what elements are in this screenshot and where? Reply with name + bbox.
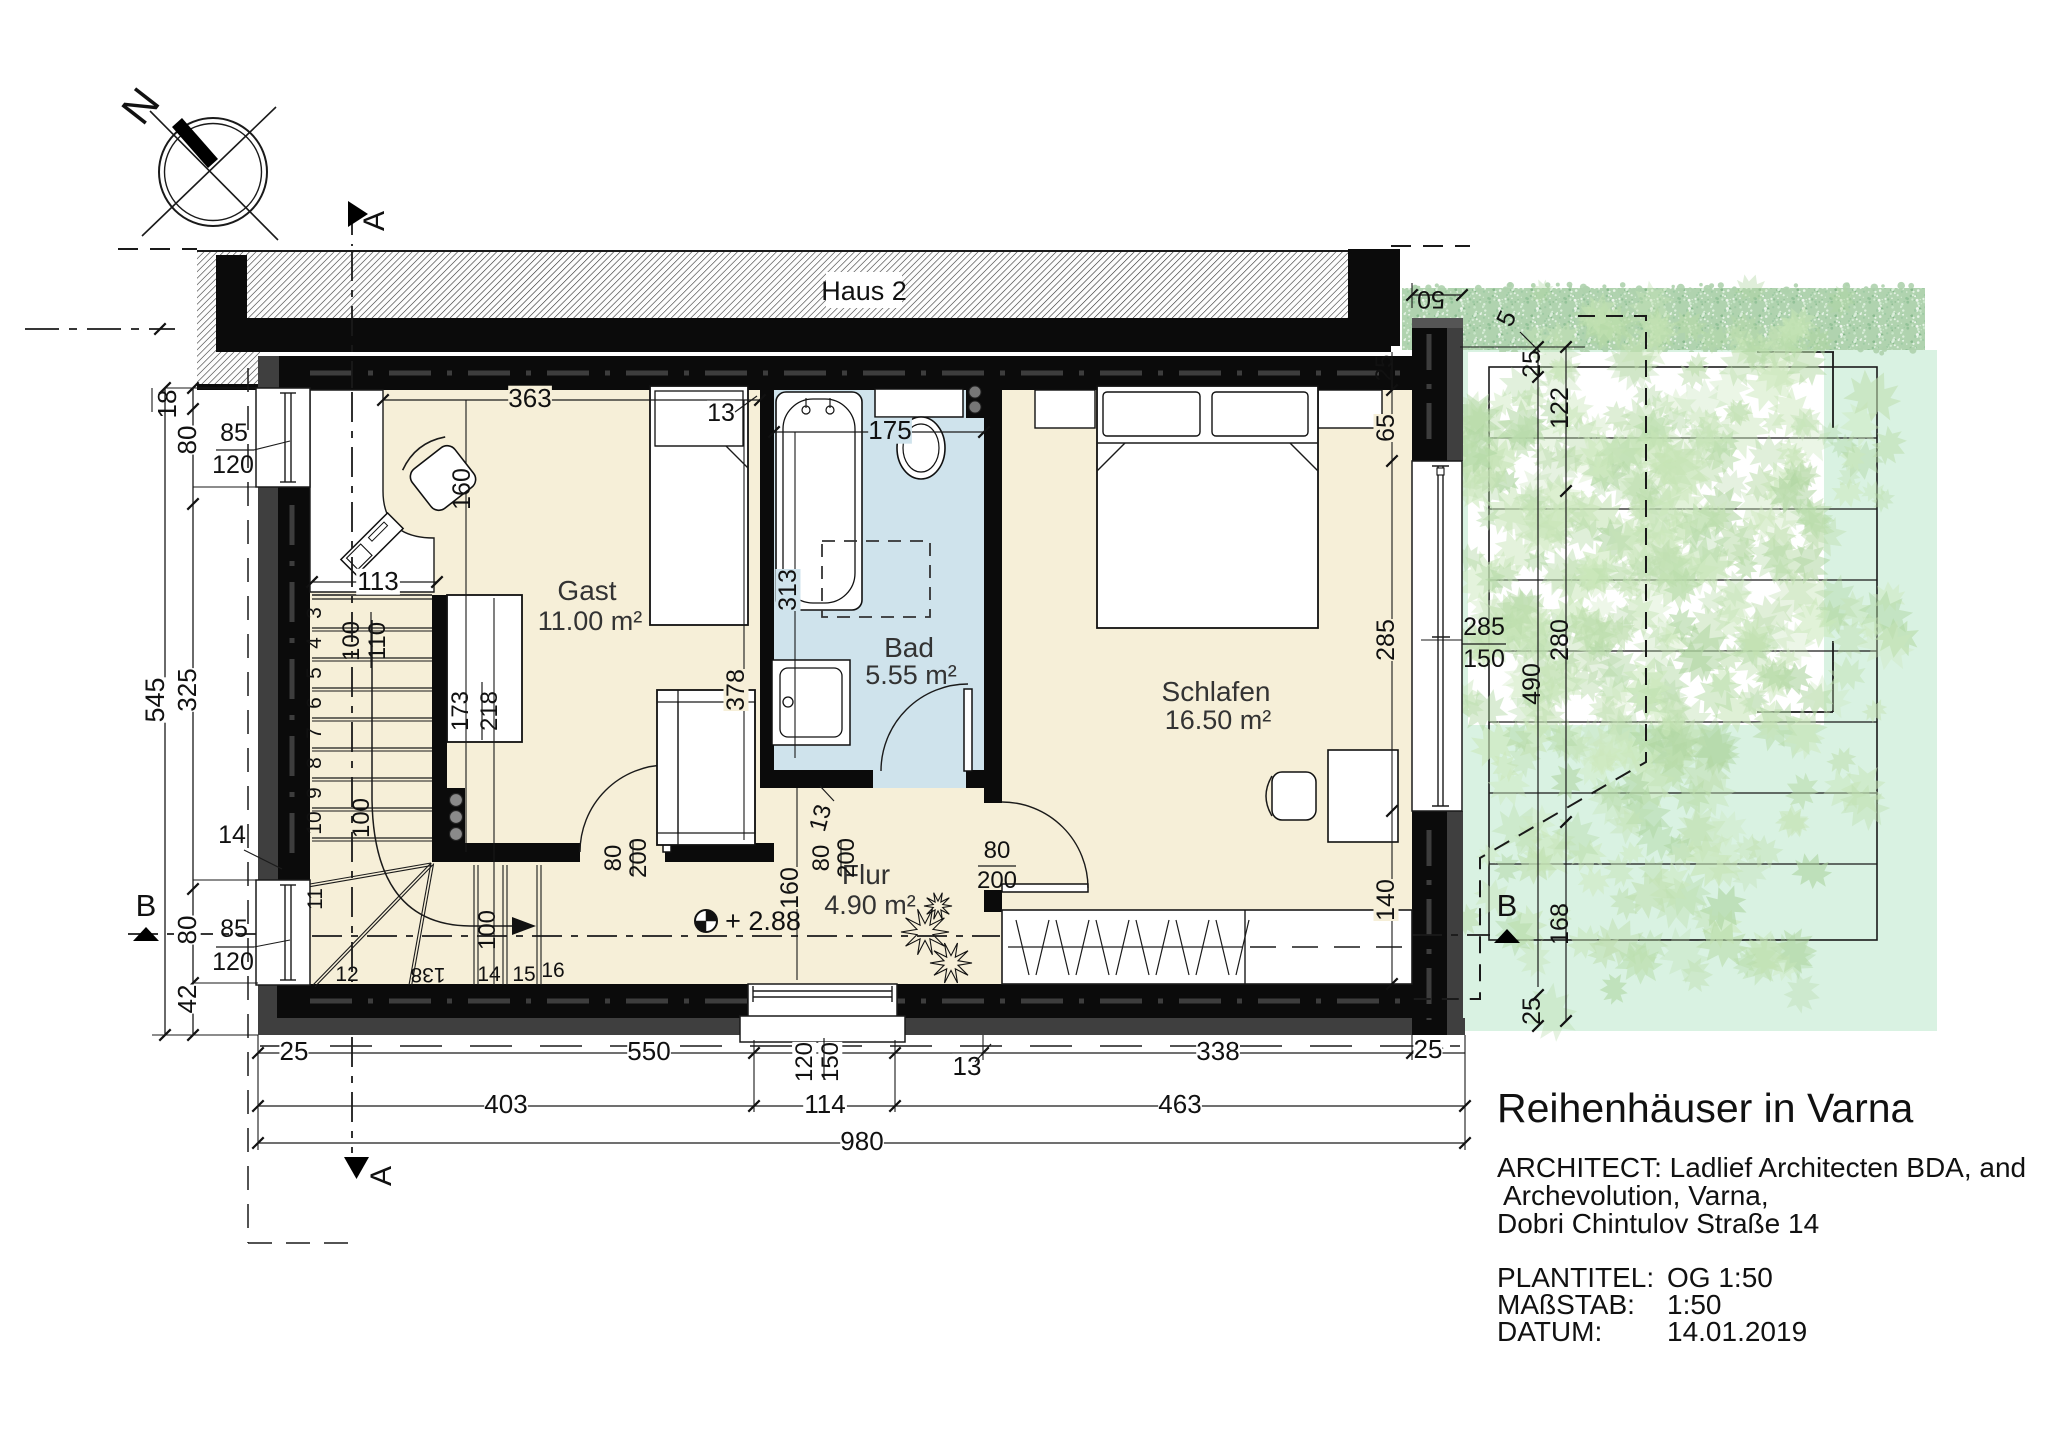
- svg-text:+ 2.88: + 2.88: [725, 906, 801, 936]
- svg-text:80: 80: [600, 845, 627, 872]
- svg-text:16: 16: [541, 959, 564, 982]
- svg-text:25: 25: [1518, 350, 1546, 378]
- svg-text:200: 200: [833, 838, 860, 878]
- svg-text:10: 10: [303, 811, 326, 834]
- svg-text:5: 5: [303, 667, 326, 679]
- svg-text:110: 110: [364, 622, 391, 660]
- svg-text:Reihenhäuser in Varna: Reihenhäuser in Varna: [1497, 1085, 1914, 1131]
- svg-text:25: 25: [1371, 355, 1398, 382]
- svg-text:150: 150: [1463, 645, 1505, 673]
- svg-text:175: 175: [868, 415, 911, 445]
- svg-text:138: 138: [410, 963, 445, 986]
- svg-text:545: 545: [140, 677, 170, 722]
- svg-text:13: 13: [953, 1051, 982, 1081]
- svg-text:42: 42: [172, 985, 202, 1014]
- svg-text:80: 80: [172, 916, 202, 945]
- svg-text:285: 285: [1463, 613, 1505, 641]
- svg-text:403: 403: [484, 1089, 527, 1119]
- svg-text:B: B: [1497, 888, 1518, 923]
- svg-text:80: 80: [984, 837, 1011, 864]
- svg-text:8: 8: [303, 757, 326, 769]
- svg-text:9: 9: [303, 787, 326, 799]
- svg-text:3: 3: [303, 607, 326, 619]
- svg-text:25: 25: [1518, 997, 1546, 1025]
- svg-text:200: 200: [625, 838, 652, 878]
- svg-text:150: 150: [817, 1042, 844, 1082]
- svg-text:B: B: [136, 888, 157, 923]
- svg-text:5.55 m²: 5.55 m²: [865, 660, 957, 690]
- svg-text:65: 65: [1372, 414, 1400, 442]
- svg-text:12: 12: [335, 963, 358, 986]
- svg-text:A: A: [365, 1166, 398, 1186]
- svg-text:Haus 2: Haus 2: [821, 276, 907, 306]
- svg-text:A: A: [358, 211, 391, 231]
- svg-text:285: 285: [1372, 619, 1400, 661]
- svg-text:16.50 m²: 16.50 m²: [1165, 705, 1272, 735]
- svg-text:120: 120: [791, 1042, 818, 1082]
- svg-text:218: 218: [476, 691, 503, 731]
- svg-text:DATUM:: DATUM:: [1497, 1316, 1602, 1347]
- svg-text:313: 313: [774, 569, 802, 611]
- svg-text:80: 80: [172, 426, 202, 455]
- svg-text:378: 378: [722, 669, 750, 711]
- svg-text:325: 325: [172, 668, 202, 711]
- svg-text:Bad: Bad: [884, 632, 934, 663]
- svg-text:7: 7: [303, 727, 326, 739]
- svg-text:14: 14: [477, 963, 501, 986]
- svg-text:490: 490: [1518, 663, 1546, 705]
- svg-text:280: 280: [1546, 619, 1574, 661]
- svg-text:85: 85: [220, 915, 248, 943]
- svg-text:80: 80: [808, 845, 835, 872]
- svg-text:140: 140: [1372, 879, 1400, 921]
- svg-text:4: 4: [303, 637, 326, 649]
- svg-text:18: 18: [152, 390, 182, 419]
- svg-text:160: 160: [448, 468, 476, 510]
- svg-text:14.01.2019: 14.01.2019: [1667, 1316, 1807, 1347]
- svg-text:980: 980: [840, 1126, 883, 1156]
- svg-text:122: 122: [1546, 387, 1574, 429]
- svg-text:25: 25: [1414, 1034, 1443, 1064]
- svg-text:550: 550: [627, 1036, 670, 1066]
- svg-text:11: 11: [304, 888, 327, 910]
- svg-text:114: 114: [804, 1089, 845, 1119]
- svg-text:11.00 m²: 11.00 m²: [538, 606, 643, 636]
- svg-text:120: 120: [212, 948, 254, 976]
- svg-text:Gast: Gast: [557, 575, 616, 606]
- svg-text:200: 200: [977, 867, 1017, 894]
- svg-text:463: 463: [1158, 1089, 1201, 1119]
- svg-text:Schlafen: Schlafen: [1162, 676, 1271, 707]
- svg-text:100: 100: [474, 910, 501, 950]
- svg-text:113: 113: [357, 566, 398, 596]
- svg-text:15: 15: [512, 963, 535, 986]
- svg-text:168: 168: [1546, 903, 1574, 945]
- svg-text:120: 120: [212, 451, 254, 479]
- svg-text:25: 25: [280, 1036, 309, 1066]
- svg-text:Archevolution, Varna,: Archevolution, Varna,: [1503, 1180, 1769, 1211]
- svg-text:85: 85: [220, 419, 248, 447]
- svg-text:50: 50: [1417, 285, 1445, 313]
- svg-text:Dobri Chintulov Straße 14: Dobri Chintulov Straße 14: [1497, 1208, 1819, 1239]
- svg-text:14: 14: [218, 821, 246, 849]
- svg-text:ARCHITECT: Ladlief Architecten: ARCHITECT: Ladlief Architecten BDA, and: [1497, 1152, 2026, 1183]
- svg-text:173: 173: [447, 691, 474, 731]
- svg-text:6: 6: [303, 697, 326, 709]
- svg-text:13: 13: [707, 399, 735, 427]
- svg-text:4.90 m²: 4.90 m²: [824, 890, 916, 920]
- svg-text:363: 363: [508, 383, 551, 413]
- svg-text:338: 338: [1196, 1036, 1239, 1066]
- svg-text:160: 160: [776, 867, 804, 909]
